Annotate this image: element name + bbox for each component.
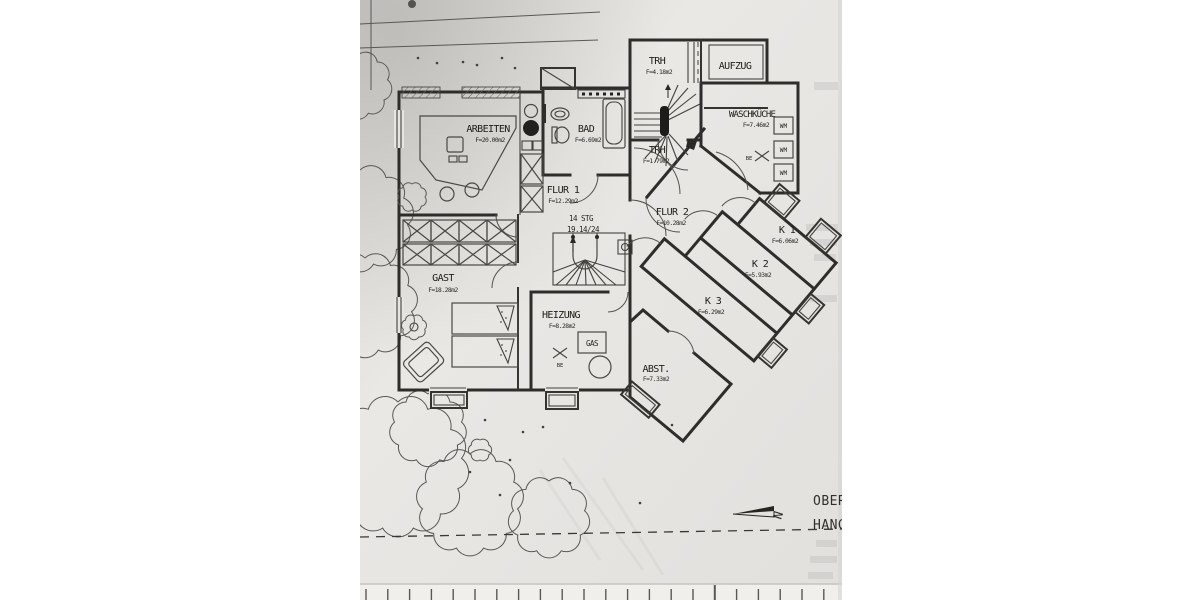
wall-hatch-strip	[402, 87, 440, 98]
label-abst: ABST.	[642, 364, 669, 375]
stair-dims-note: 19.14/24	[567, 225, 600, 234]
stair-newel	[660, 106, 669, 136]
be-label-waschkueche: BE	[746, 156, 753, 162]
label-k3: K 3	[705, 296, 722, 307]
gas-label: GAS	[586, 339, 599, 348]
pebble-mark	[408, 0, 416, 8]
area-waschkueche: F=7.46m2	[743, 122, 770, 129]
area-trh-lower: F=1.79m2	[643, 158, 670, 165]
label-arbeiten: ARBEITEN	[466, 124, 510, 135]
sheet-under-edge	[360, 584, 842, 600]
label-k2: K 2	[752, 259, 769, 270]
cooktop	[523, 120, 539, 136]
label-trh-lower: TRH	[649, 145, 666, 156]
area-bad: F=6.69m2	[575, 137, 602, 144]
label-trh-top: TRH	[649, 56, 666, 67]
area-arbeiten: F=20.00m2	[475, 137, 505, 144]
wall-hatch-strip	[462, 87, 520, 98]
be-label-heizung: BE	[557, 363, 564, 369]
wm-label-1: WM	[780, 123, 788, 130]
label-waschkueche: WASCHKÜCHE	[729, 109, 776, 120]
floorplan-drawing: ARBEITEN F=20.00m2 BAD F=6.69m2 TRH F=4.…	[0, 0, 1200, 600]
area-k3: F=6.29m2	[698, 309, 725, 316]
area-gast: F=18.28m2	[428, 287, 458, 294]
label-aufzug: AUFZUG	[719, 61, 752, 72]
label-gast: GAST	[432, 273, 454, 284]
margin-note-line1: OBER	[813, 494, 846, 509]
stair-steps-note: 14 STG	[569, 214, 594, 223]
area-trh-top: F=4.18m2	[646, 69, 673, 76]
label-flur2: FLUR 2	[656, 207, 689, 218]
area-heizung: F=8.28m2	[549, 323, 576, 330]
area-k2: F=5.93m2	[745, 272, 772, 279]
wm-label-2: WM	[780, 147, 788, 154]
wm-label-3: WM	[780, 170, 788, 177]
label-k1: K 1	[779, 225, 796, 236]
area-k1: F=6.06m2	[772, 238, 799, 245]
area-flur1: F=12.29m2	[548, 198, 578, 205]
margin-note-line2: HANG	[813, 518, 846, 533]
label-bad: BAD	[578, 124, 595, 135]
area-abst: F=7.33m2	[643, 376, 670, 383]
label-heizung: HEIZUNG	[542, 310, 581, 321]
label-flur1: FLUR 1	[547, 185, 580, 196]
page-edge-shadow	[838, 0, 842, 600]
area-flur2: F=10.28m2	[656, 220, 686, 227]
photo-of-floorplan: ARBEITEN F=20.00m2 BAD F=6.69m2 TRH F=4.…	[0, 0, 1200, 600]
